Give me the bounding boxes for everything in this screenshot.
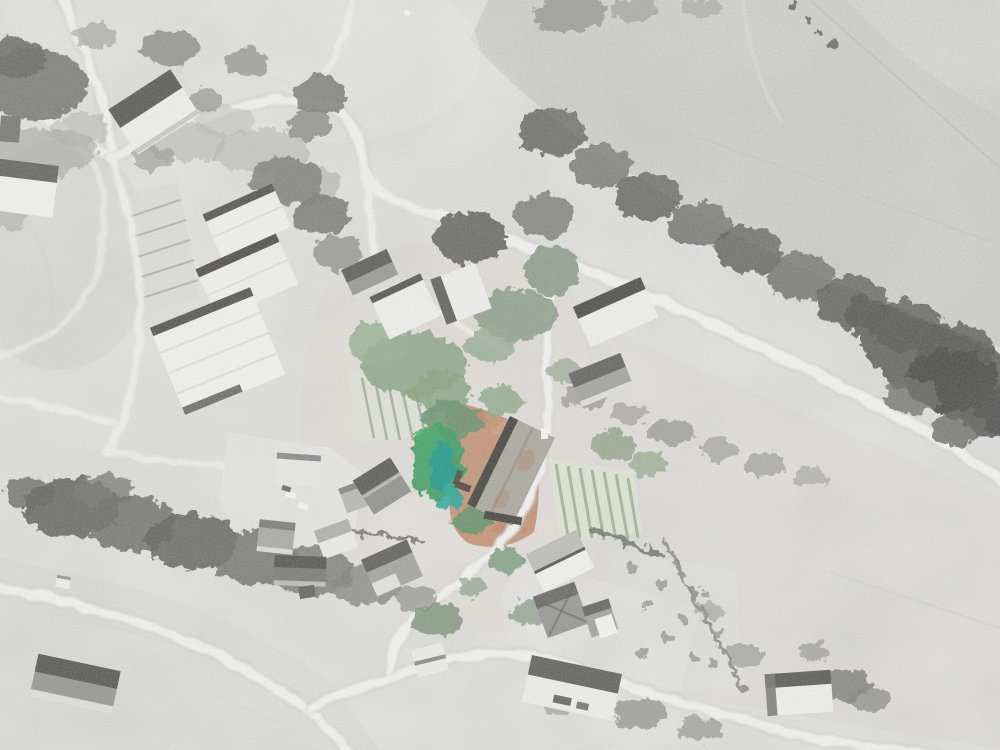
- film-grain-light: [0, 0, 1000, 750]
- aerial-photo-canvas: [0, 0, 1000, 750]
- aerial-photo: [0, 0, 1000, 750]
- scene-root: [0, 0, 1000, 750]
